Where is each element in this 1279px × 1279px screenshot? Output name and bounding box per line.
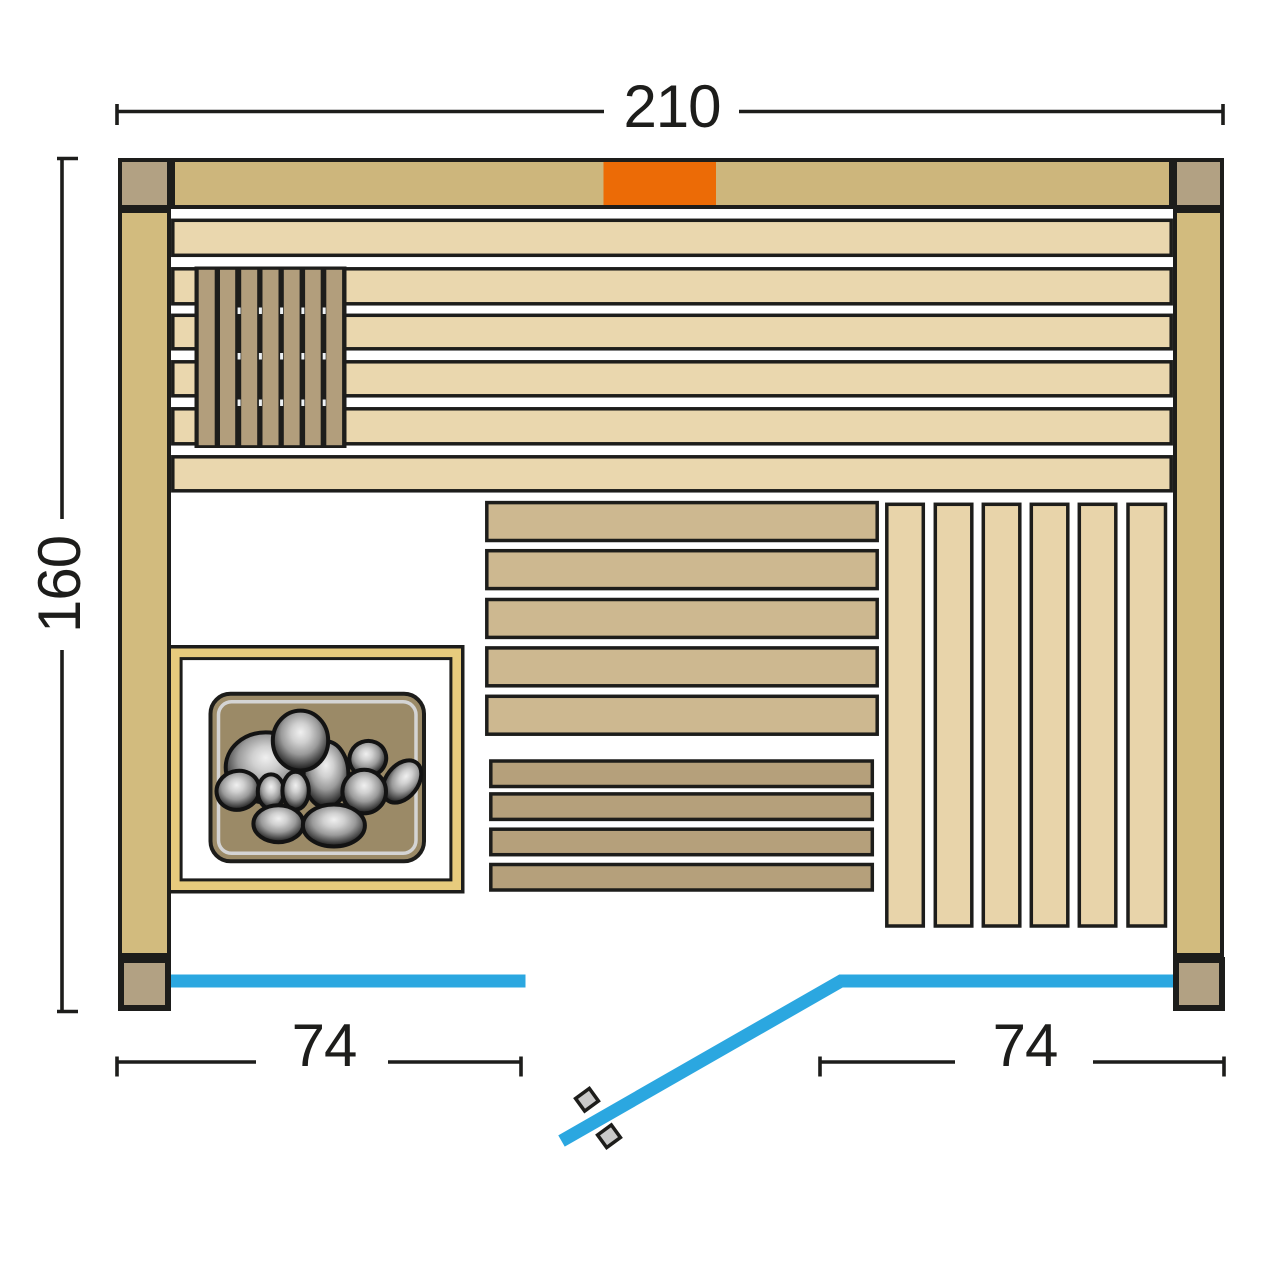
svg-text:74: 74	[993, 1012, 1058, 1079]
svg-text:74: 74	[292, 1012, 357, 1079]
svg-text:160: 160	[26, 536, 93, 633]
svg-text:210: 210	[623, 73, 720, 140]
